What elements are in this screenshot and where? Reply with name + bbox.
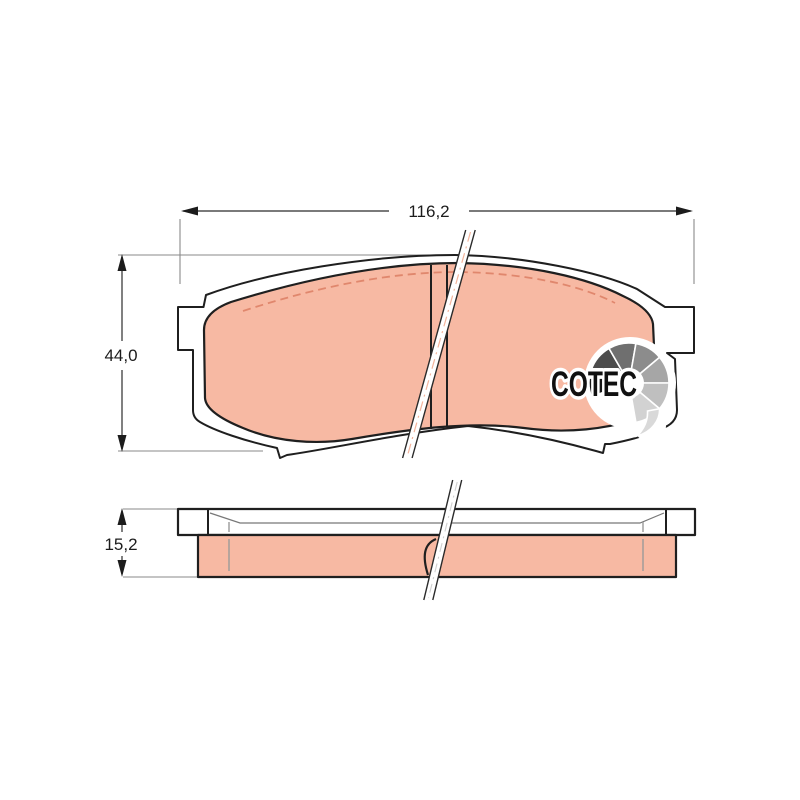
arrowhead-up bbox=[118, 254, 127, 271]
dimension-thickness-label: 15,2 bbox=[104, 535, 137, 554]
dimension-height: 44,0 bbox=[104, 254, 137, 452]
arrowhead-down bbox=[118, 560, 127, 577]
drawing-canvas: COTEC 116,2 bbox=[0, 0, 800, 800]
brake-pad-technical-drawing: COTEC 116,2 bbox=[0, 0, 800, 800]
arrowhead-left bbox=[181, 207, 198, 216]
cotec-wordmark: COTEC bbox=[551, 365, 637, 404]
dimension-thickness: 15,2 bbox=[104, 508, 137, 577]
dimension-width-label: 116,2 bbox=[408, 202, 449, 221]
arrowhead-down bbox=[118, 435, 127, 452]
arrowhead-right bbox=[676, 207, 693, 216]
arrowhead-up bbox=[118, 508, 127, 525]
dimension-height-label: 44,0 bbox=[104, 346, 137, 365]
dimension-width: 116,2 bbox=[181, 202, 693, 221]
backing-plate-side bbox=[178, 509, 695, 535]
